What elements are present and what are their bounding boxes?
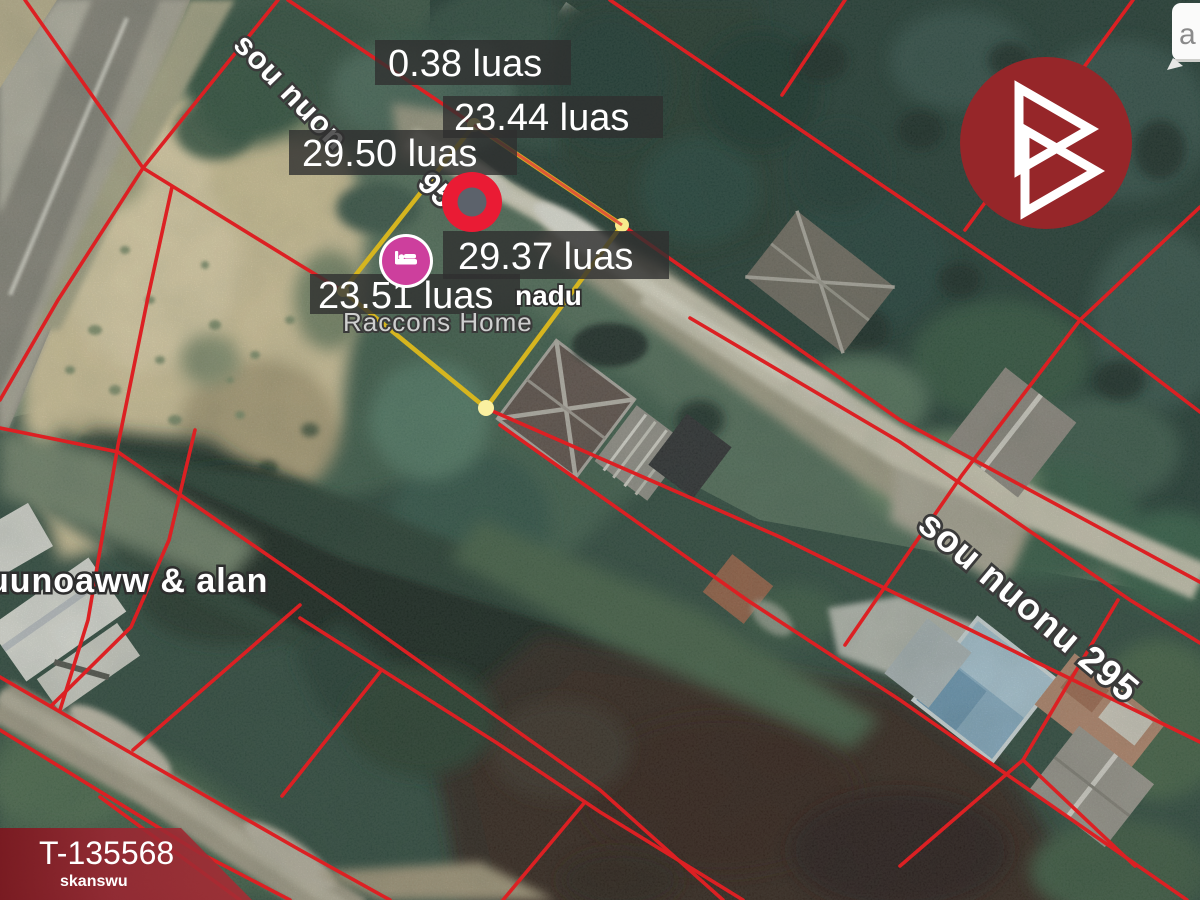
svg-text:uunoaww & alan: uunoaww & alan	[0, 562, 268, 600]
svg-text:0.38 luas: 0.38 luas	[388, 43, 542, 85]
svg-text:a: a	[1179, 18, 1196, 51]
svg-text:T-135568: T-135568	[39, 835, 174, 871]
svg-text:skanswu: skanswu	[60, 873, 128, 890]
svg-text:Raccons Home: Raccons Home	[343, 307, 533, 337]
svg-text:29.37 luas: 29.37 luas	[458, 236, 633, 278]
svg-text:29.50 luas: 29.50 luas	[302, 133, 477, 175]
